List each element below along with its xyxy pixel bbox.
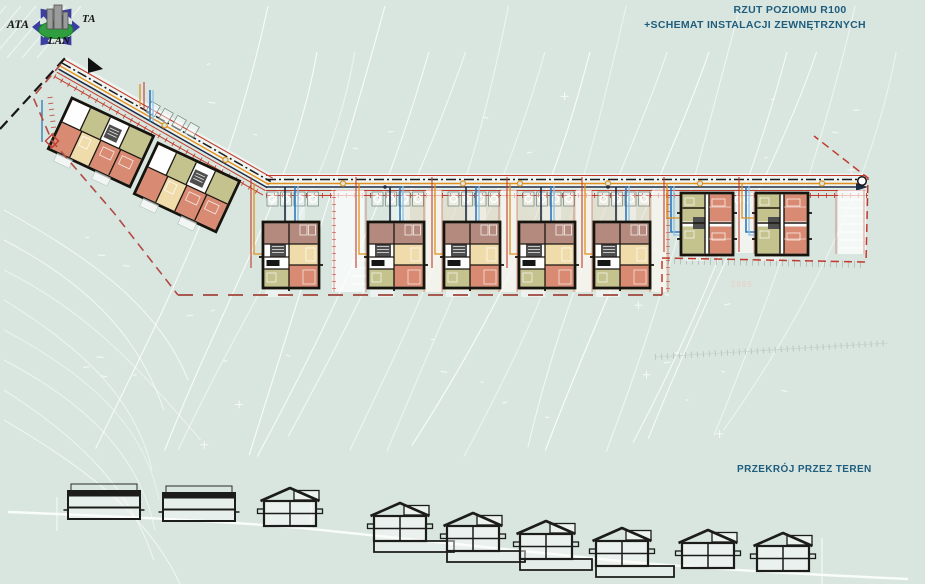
building-plan-b5	[590, 222, 654, 291]
site-plan-drawing	[0, 0, 925, 584]
section-house-3	[441, 513, 506, 551]
logo-text-bottom: LAN	[48, 35, 70, 47]
buildings-left-cluster	[45, 98, 240, 240]
manhole-symbol	[858, 177, 867, 186]
building-plan-b2	[364, 222, 428, 291]
drawing-title-line2: +SCHEMAT INSTALACJI ZEWNĘTRZNYCH	[640, 19, 870, 31]
terrain-section	[8, 484, 908, 584]
logo-text-right: TA	[82, 13, 95, 25]
existing-road-dashed-line	[0, 57, 66, 129]
drawing-canvas: ATA TA LAN RZUT POZIOMU R100 +SCHEMAT IN…	[0, 0, 925, 584]
section-house-2	[368, 503, 433, 541]
section-building-2	[159, 486, 240, 521]
section-house-7	[751, 533, 816, 571]
section-house-1	[258, 488, 323, 526]
section-building-1	[64, 484, 145, 519]
embankment-hatch	[655, 261, 888, 358]
section-title: PRZEKRÓJ PRZEZ TEREN	[737, 464, 872, 475]
building-plan-c1	[677, 193, 737, 255]
building-plan-b3	[440, 222, 504, 291]
building-plan-c2	[752, 193, 812, 255]
section-house-5	[590, 528, 655, 566]
section-house-6	[676, 530, 741, 568]
logo-buildings-icon	[47, 5, 68, 29]
building-plan-b1	[259, 222, 323, 291]
building-plan-b4	[515, 222, 579, 291]
logo-text-left: ATA	[7, 17, 29, 32]
section-house-4	[514, 521, 579, 559]
elevation-label: 2065	[731, 280, 753, 289]
company-logo: ATA TA LAN	[6, 0, 108, 58]
drawing-title-line1: RZUT POZIOMU R100	[660, 4, 920, 16]
road-flow-arrow	[88, 58, 103, 74]
